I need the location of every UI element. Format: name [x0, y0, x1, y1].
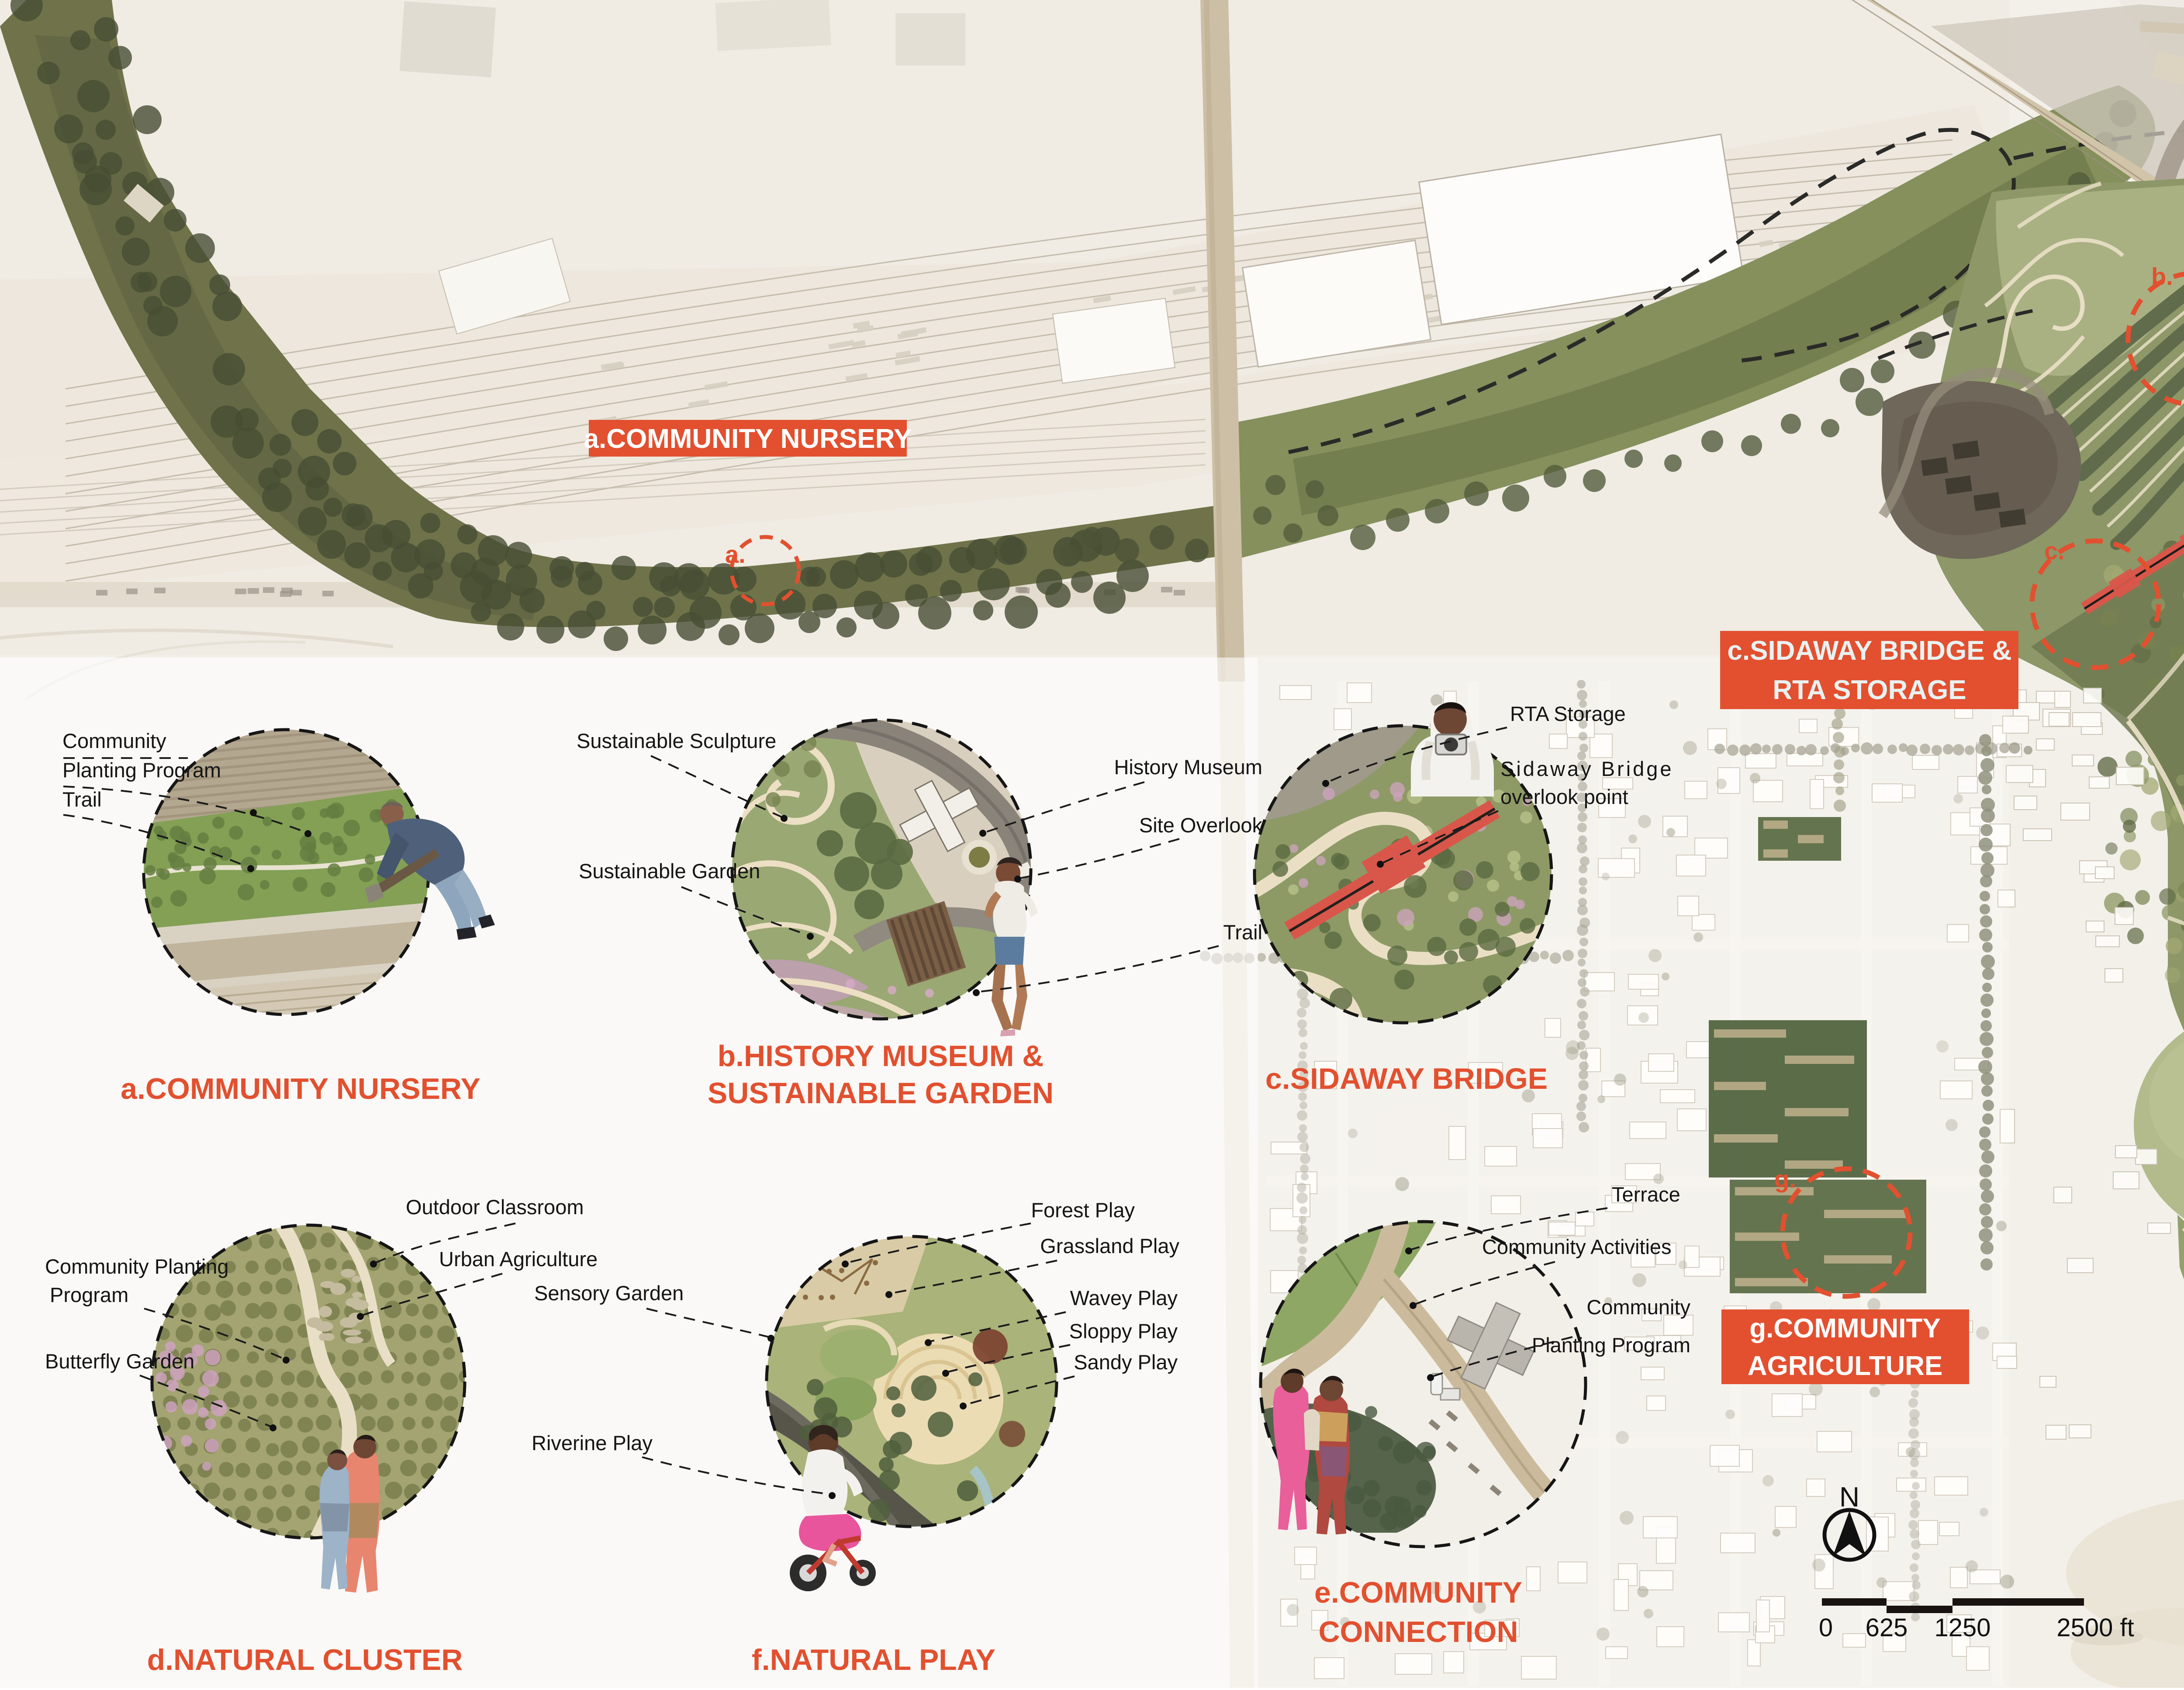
svg-text:f.NATURAL PLAY: f.NATURAL PLAY — [752, 1643, 995, 1676]
svg-text:Sandy Play: Sandy Play — [1074, 1351, 1178, 1374]
svg-text:Community Activities: Community Activities — [1482, 1235, 1672, 1258]
svg-text:Outdoor Classroom: Outdoor Classroom — [406, 1195, 584, 1219]
svg-text:overlook point: overlook point — [1500, 785, 1628, 808]
svg-text:SUSTAINABLE GARDEN: SUSTAINABLE GARDEN — [708, 1077, 1054, 1110]
svg-text:Community: Community — [62, 729, 166, 752]
svg-text:1250: 1250 — [1934, 1614, 1990, 1642]
svg-text:c.: c. — [2044, 537, 2065, 564]
svg-text:a.COMMUNITY NURSERY: a.COMMUNITY NURSERY — [584, 424, 912, 454]
svg-text:N: N — [1839, 1481, 1859, 1513]
svg-text:2500 ft: 2500 ft — [2056, 1614, 2134, 1642]
svg-text:Butterfly Garden: Butterfly Garden — [45, 1350, 194, 1373]
svg-text:RTA Storage: RTA Storage — [1510, 702, 1626, 725]
svg-text:c.SIDAWAY BRIDGE: c.SIDAWAY BRIDGE — [1265, 1062, 1548, 1095]
svg-text:a.COMMUNITY NURSERY: a.COMMUNITY NURSERY — [121, 1072, 480, 1105]
svg-text:d.NATURAL CLUSTER: d.NATURAL CLUSTER — [147, 1643, 463, 1676]
svg-text:RTA STORAGE: RTA STORAGE — [1773, 675, 1966, 705]
svg-text:AGRICULTURE: AGRICULTURE — [1748, 1351, 1943, 1381]
svg-text:Terrace: Terrace — [1612, 1183, 1680, 1206]
svg-text:Community: Community — [1586, 1295, 1690, 1319]
svg-text:Riverine Play: Riverine Play — [532, 1431, 653, 1455]
svg-text:Grassland Play: Grassland Play — [1040, 1234, 1179, 1257]
svg-text:Community Planting: Community Planting — [45, 1255, 229, 1278]
svg-text:e.COMMUNITY: e.COMMUNITY — [1314, 1576, 1522, 1609]
svg-text:b.: b. — [2151, 263, 2173, 290]
svg-text:Wavey Play: Wavey Play — [1070, 1286, 1178, 1309]
svg-text:a.: a. — [725, 540, 746, 568]
svg-text:Sidaway Bridge: Sidaway Bridge — [1500, 757, 1674, 780]
svg-text:Sloppy Play: Sloppy Play — [1069, 1319, 1178, 1343]
svg-text:Sustainable Garden: Sustainable Garden — [579, 859, 760, 883]
svg-text:Trail: Trail — [62, 788, 102, 811]
svg-text:Trail: Trail — [1223, 921, 1262, 944]
svg-text:g.: g. — [1774, 1165, 1796, 1193]
svg-text:Sensory Garden: Sensory Garden — [534, 1281, 684, 1305]
svg-text:Planting Program: Planting Program — [62, 758, 221, 782]
svg-text:b.HISTORY MUSEUM &: b.HISTORY MUSEUM & — [718, 1039, 1044, 1073]
svg-text:Planting Program: Planting Program — [1532, 1333, 1690, 1357]
svg-text:History Museum: History Museum — [1114, 755, 1262, 779]
svg-text:g.COMMUNITY: g.COMMUNITY — [1749, 1313, 1940, 1344]
svg-text:c.SIDAWAY BRIDGE &: c.SIDAWAY BRIDGE & — [1727, 636, 2011, 666]
svg-text:Sustainable Sculpture: Sustainable Sculpture — [577, 729, 776, 752]
svg-text:625: 625 — [1866, 1614, 1908, 1642]
svg-text:Urban Agriculture: Urban Agriculture — [439, 1247, 598, 1271]
svg-text:Forest Play: Forest Play — [1031, 1198, 1135, 1222]
svg-text:Site Overlook: Site Overlook — [1139, 814, 1263, 837]
svg-text:0: 0 — [1819, 1614, 1833, 1642]
svg-text:Program: Program — [50, 1283, 128, 1306]
svg-text:CONNECTION: CONNECTION — [1318, 1615, 1518, 1648]
